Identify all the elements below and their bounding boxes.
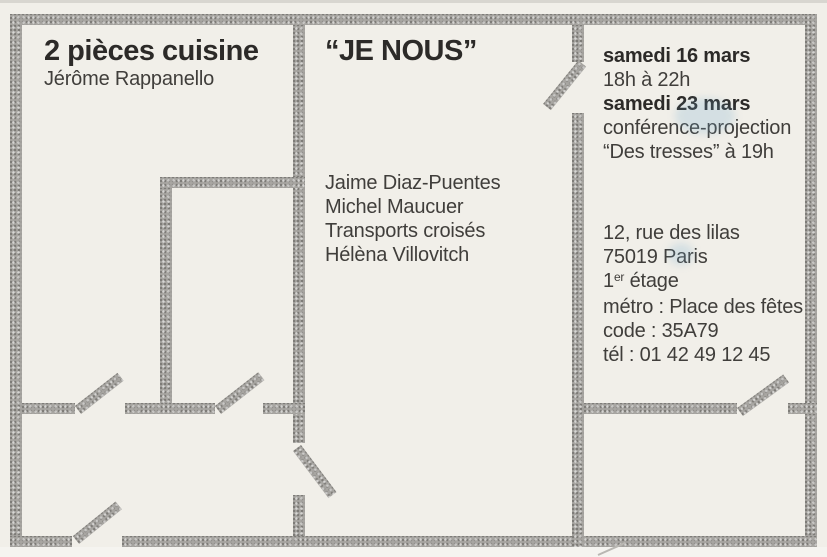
wall-e-segment-3 <box>263 403 305 414</box>
title-block: 2 pièces cuisine Jérôme Rappanello <box>44 37 258 91</box>
page-title: 2 pièces cuisine <box>44 37 258 65</box>
wall-outer-bottom-right <box>122 536 817 547</box>
door-leaf-entry <box>73 502 122 544</box>
address-city: 75019 Paris <box>603 245 803 269</box>
door-leaf-wall-a <box>293 445 336 498</box>
ordinal-suffix: er <box>614 270 624 284</box>
door-leaf-wall-b <box>543 60 586 110</box>
address-phone: tél : 01 42 49 12 45 <box>603 343 803 367</box>
address-block: 12, rue des lilas 75019 Paris 1er étage … <box>603 221 803 367</box>
scanned-invitation-card: 2 pièces cuisine Jérôme Rappanello “JE N… <box>0 0 827 557</box>
scan-edge-bottom <box>0 547 827 557</box>
scan-smudge-ink-1 <box>675 98 735 134</box>
wall-e-segment-1 <box>22 403 75 414</box>
wall-outer-bottom-left <box>10 536 72 547</box>
door-leaf-e2 <box>215 372 264 414</box>
address-street: 12, rue des lilas <box>603 221 803 245</box>
wall-f-stub <box>788 403 817 414</box>
wall-b-main <box>572 113 584 547</box>
artist-list: Jaime Diaz-Puentes Michel Maucuer Transp… <box>325 171 500 267</box>
address-metro: métro : Place des fêtes <box>603 295 803 319</box>
wall-outer-right <box>805 14 817 547</box>
author-name: Jérôme Rappanello <box>44 67 258 91</box>
address-door-code: code : 35A79 <box>603 319 803 343</box>
wall-f-main <box>584 403 737 414</box>
wall-outer-left <box>10 14 22 547</box>
wall-a-stub <box>293 495 305 536</box>
schedule-date-1: samedi 16 mars <box>603 44 791 68</box>
wall-e-segment-2 <box>125 403 215 414</box>
wall-a-main <box>293 25 305 443</box>
artist-name: Michel Maucuer <box>325 195 500 219</box>
artist-name: Transports croisés <box>325 219 500 243</box>
schedule-time-1: 18h à 22h <box>603 68 791 92</box>
address-floor: 1er étage <box>603 269 803 295</box>
wall-d-vertical <box>160 188 172 414</box>
artist-name: Hélèna Villovitch <box>325 243 500 267</box>
artist-name: Jaime Diaz-Puentes <box>325 171 500 195</box>
door-leaf-wall-f <box>737 374 789 416</box>
wall-outer-top <box>10 14 817 25</box>
door-leaf-e1 <box>75 373 124 414</box>
wall-c-horizontal <box>160 177 305 188</box>
schedule-event-2-detail: “Des tresses” à 19h <box>603 140 791 164</box>
scan-smudge-ink-2 <box>668 243 694 265</box>
exhibition-title: “JE NOUS” <box>325 37 477 65</box>
wall-b-top <box>572 25 584 62</box>
scan-edge-top <box>0 0 827 3</box>
